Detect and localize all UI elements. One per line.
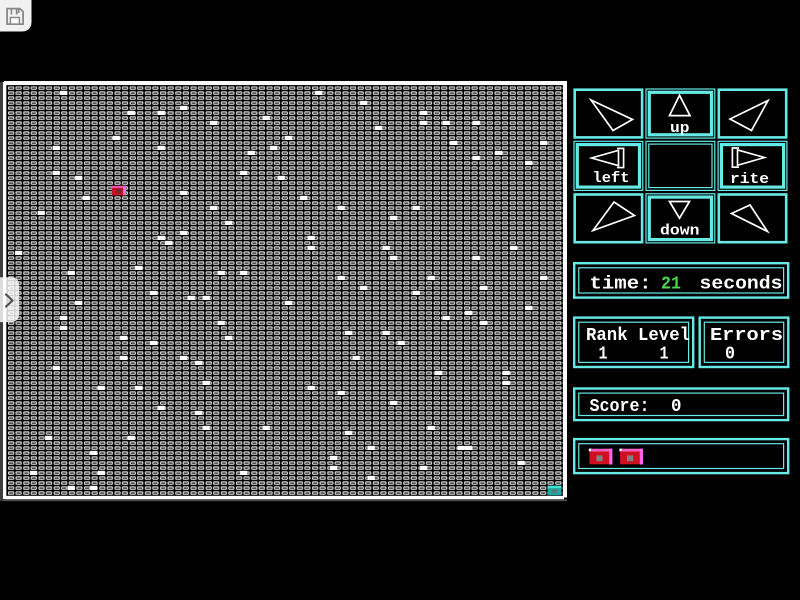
svg-text:1: 1 — [660, 345, 669, 365]
svg-text:time:: time: — [590, 275, 652, 295]
svg-text:1: 1 — [599, 345, 608, 365]
svg-text:0: 0 — [725, 345, 735, 365]
svg-text:rite: rite — [730, 172, 769, 188]
svg-text:down: down — [660, 224, 700, 240]
svg-text:21: 21 — [661, 275, 681, 295]
svg-text:0: 0 — [671, 397, 682, 417]
svg-text:seconds: seconds — [700, 275, 783, 295]
svg-text:Rank Level: Rank Level — [586, 326, 690, 346]
svg-text:Score:: Score: — [590, 397, 650, 417]
svg-text:Errors: Errors — [710, 326, 783, 346]
svg-text:up: up — [670, 121, 690, 137]
svg-text:left: left — [593, 171, 630, 187]
